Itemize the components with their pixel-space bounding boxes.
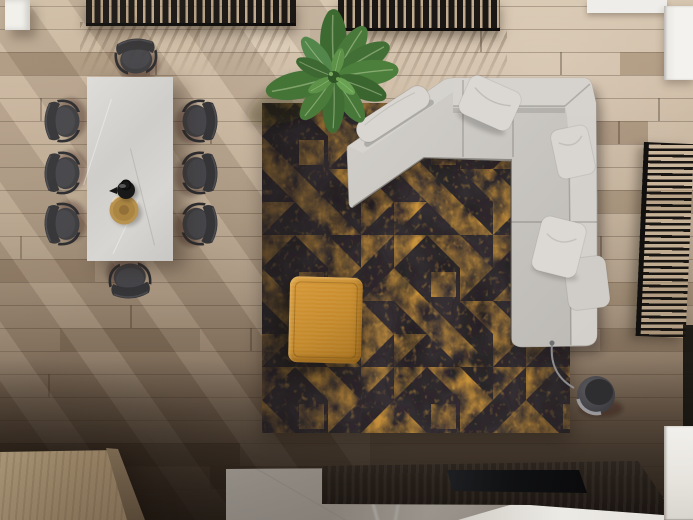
slat-shadow <box>332 27 507 97</box>
white-cabinet <box>664 426 693 520</box>
white-beam <box>5 0 30 30</box>
ottoman <box>288 276 363 364</box>
dining-table <box>87 77 173 261</box>
chair <box>174 151 218 197</box>
chair <box>44 149 88 195</box>
area-rug <box>262 103 570 433</box>
ceiling-slat-band <box>338 0 500 31</box>
louver-edge-strip <box>683 325 693 437</box>
marble-vein <box>112 200 138 255</box>
chair <box>174 202 218 248</box>
wood-block-table <box>0 448 146 520</box>
slat-shadow <box>80 22 290 77</box>
ceiling-slat-band <box>86 0 296 26</box>
chair <box>105 255 152 300</box>
louver-screen <box>636 142 693 338</box>
chair <box>44 200 88 246</box>
marble-vein <box>83 99 112 185</box>
marble-vein <box>130 148 155 245</box>
rug-pattern <box>262 103 570 433</box>
chair <box>45 98 88 142</box>
living-room-top-view <box>0 0 693 520</box>
chair <box>175 100 218 144</box>
white-block <box>587 0 667 13</box>
white-panel <box>664 6 693 80</box>
